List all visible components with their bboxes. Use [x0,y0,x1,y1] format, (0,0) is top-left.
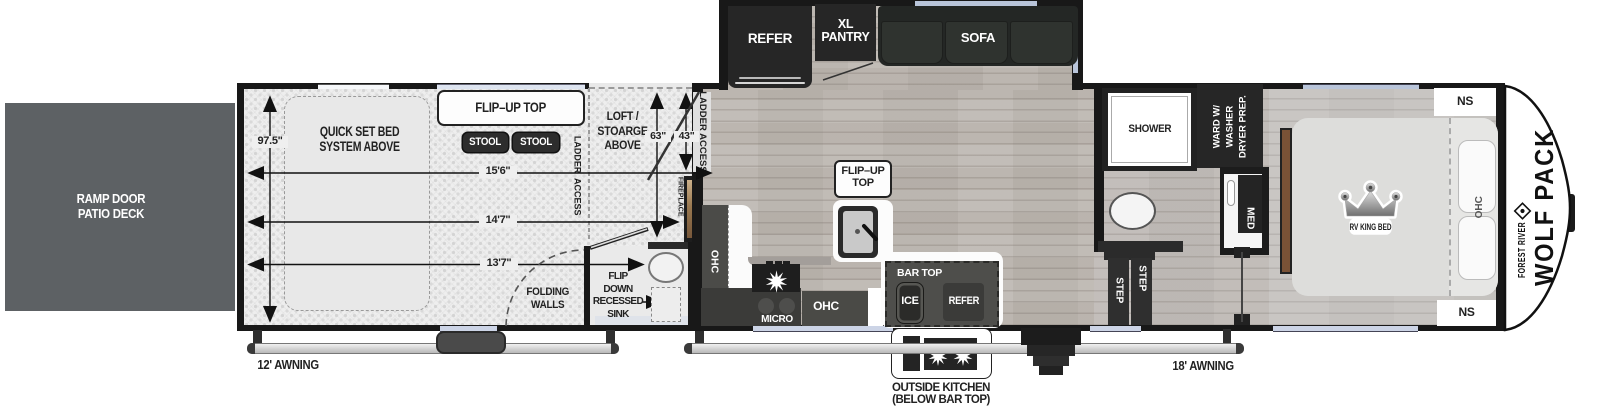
svg-text:FOREST RIVER: FOREST RIVER [1517,222,1528,278]
svg-text:RV KING BED: RV KING BED [1350,222,1392,232]
svg-text:WOLF PACK: WOLF PACK [1529,128,1559,286]
